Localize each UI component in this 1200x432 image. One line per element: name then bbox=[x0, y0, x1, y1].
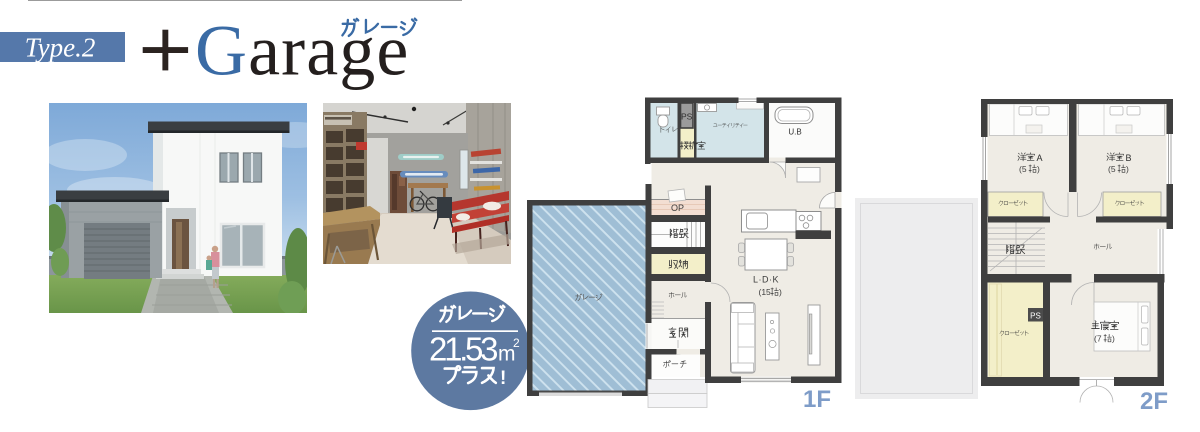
svg-text:21.53: 21.53 bbox=[429, 331, 497, 368]
svg-text:): ) bbox=[1037, 164, 1040, 174]
svg-text:!: ! bbox=[500, 368, 506, 389]
svg-text:Type.2: Type.2 bbox=[25, 33, 96, 63]
svg-text:): ) bbox=[1126, 164, 1129, 174]
svg-text:): ) bbox=[1112, 334, 1115, 344]
svg-text:): ) bbox=[779, 287, 782, 297]
svg-text:(15: (15 bbox=[759, 287, 772, 297]
svg-text:(5: (5 bbox=[1019, 164, 1027, 174]
svg-text:OP: OP bbox=[671, 203, 684, 213]
svg-text:(5: (5 bbox=[1108, 164, 1116, 174]
svg-text:2F: 2F bbox=[1140, 388, 1168, 415]
svg-text:A: A bbox=[1037, 153, 1043, 163]
svg-text:PS: PS bbox=[681, 112, 693, 122]
svg-text:1F: 1F bbox=[803, 386, 831, 413]
svg-text:Garage: Garage bbox=[195, 11, 409, 91]
svg-text:(7: (7 bbox=[1094, 334, 1102, 344]
svg-text:B: B bbox=[1126, 153, 1132, 163]
svg-text:U.B: U.B bbox=[788, 128, 801, 137]
svg-text:L·D·K: L·D·K bbox=[753, 275, 779, 285]
svg-text:2: 2 bbox=[513, 336, 520, 350]
svg-text:PS: PS bbox=[1030, 312, 1041, 321]
